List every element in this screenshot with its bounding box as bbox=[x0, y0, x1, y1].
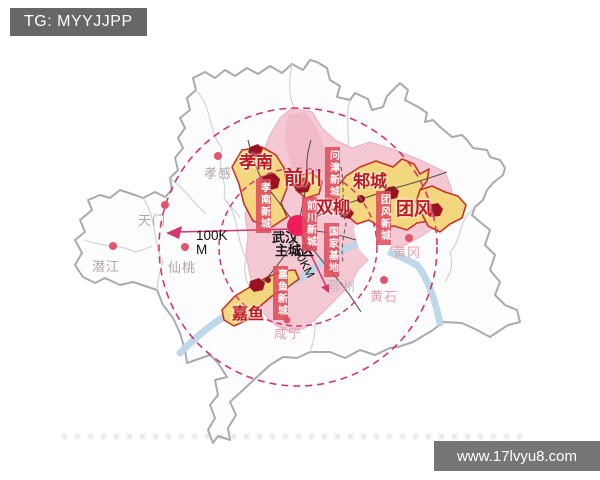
city-label-xiantao: 仙桃 bbox=[168, 257, 196, 276]
city-label-ezhou: 鄂州 bbox=[328, 276, 356, 295]
district-label-qianchuan: 前川 bbox=[284, 163, 322, 190]
city-label-huanggang: 黄冈 bbox=[393, 242, 421, 261]
district-label-jiayu: 嘉鱼 bbox=[232, 300, 264, 324]
city-dot bbox=[380, 276, 388, 284]
city-label-huangshi: 黄石 bbox=[370, 286, 398, 305]
district-label-shuangliu: 双柳 bbox=[316, 193, 350, 218]
city-dot bbox=[161, 201, 169, 209]
district-label-tuanfeng: 团风 bbox=[396, 195, 432, 221]
city-dot bbox=[214, 152, 222, 160]
new-town-banner-qianchuan: 前川新城 bbox=[302, 197, 317, 251]
city-dot bbox=[405, 234, 413, 242]
tg-watermark-badge: TG: MYYJJPP bbox=[10, 8, 147, 36]
city-label-qianjiang: 潜江 bbox=[92, 256, 120, 275]
site-watermark: www.17lvyu8.com bbox=[434, 441, 600, 471]
city-label-tianmen: 天门 bbox=[138, 210, 166, 229]
city-dot bbox=[181, 243, 189, 251]
district-label-xiaonan: 孝南 bbox=[239, 148, 273, 173]
radius-label-100km: 100K M bbox=[196, 229, 236, 256]
new-town-banner-tuanfeng: 团风新城 bbox=[376, 191, 391, 245]
city-label-xiaogan: 孝感 bbox=[204, 163, 232, 182]
new-town-banner-national-base: 国家基地 bbox=[324, 223, 339, 277]
screenshot-root: TG: MYYJJPP 孝南新城 前川新城 问津新城 团风新城 国家基地 嘉鱼新… bbox=[0, 0, 600, 480]
district-label-zhucheng: 邾城 bbox=[353, 167, 387, 192]
city-label-xianning: 咸宁 bbox=[274, 323, 302, 342]
cropped-caption-remnant bbox=[62, 434, 528, 439]
city-dot bbox=[109, 242, 117, 250]
new-town-banner-jiayu: 嘉鱼新城 bbox=[273, 266, 288, 320]
new-town-banner-xiaonan: 孝南新城 bbox=[256, 179, 271, 233]
